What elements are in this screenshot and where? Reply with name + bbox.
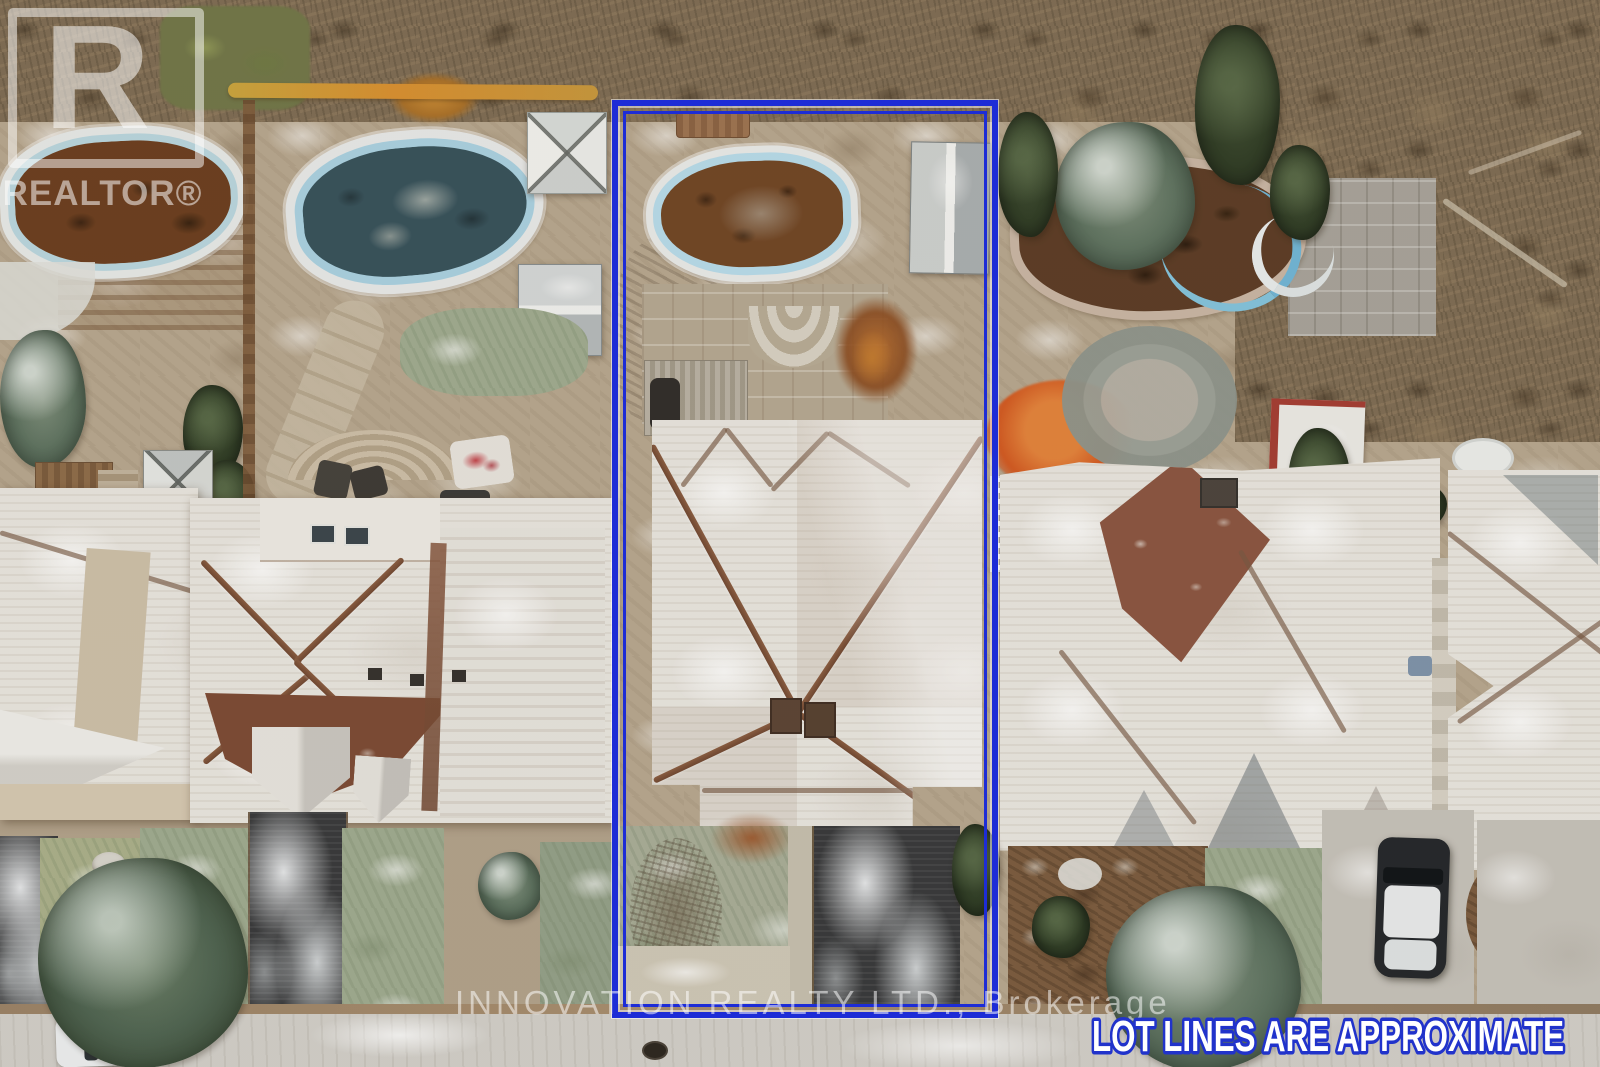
realtor-logo-label: REALTOR® [0, 174, 205, 214]
roof-facet-shadow [1503, 475, 1598, 565]
garden-shrub-1 [1032, 896, 1090, 958]
suv-windshield [1383, 867, 1444, 885]
disclaimer-text: LOT LINES ARE APPROXIMATE [1092, 1012, 1564, 1061]
wall-beige-bottom [0, 784, 198, 820]
roof-vent-2 [410, 674, 424, 686]
skylight-2 [344, 526, 370, 546]
front-bush-frost [478, 852, 542, 920]
conifer-lot-corner [998, 112, 1058, 237]
roof-fascia-beige [73, 548, 150, 744]
conifer-top-right-1 [1195, 25, 1280, 185]
lot-line-rectangle [612, 100, 998, 1018]
picnic-blanket [449, 434, 515, 490]
roof-section-redbrown [1085, 458, 1270, 673]
chimney-right-house [1200, 478, 1238, 508]
suv-roof-snow [1383, 885, 1441, 939]
left-main-house [190, 498, 615, 823]
brokerage-watermark: INNOVATION REALTY LTD., Brokerage [455, 984, 1171, 1022]
roof-vent-1 [368, 668, 382, 680]
conifer-far-left [0, 330, 86, 468]
orange-fence-line [228, 83, 598, 101]
left-front-lawn-2 [342, 828, 444, 1013]
pool-left [279, 119, 550, 303]
manhole-cover [642, 1041, 668, 1060]
conifer-top-right-2 [1270, 145, 1330, 240]
right-driveway-2 [1477, 820, 1600, 1012]
lot-line-inner [623, 111, 987, 1007]
suv-right-driveway [1374, 837, 1451, 979]
lawn-left-mid [400, 308, 588, 396]
skylight-1 [310, 524, 336, 544]
aerial-photo: R REALTOR® INNOVATION REALTY LTD., Broke… [0, 0, 1600, 1067]
garden-snow-patch [1058, 858, 1102, 890]
conifer-over-car [38, 858, 248, 1067]
neighbor-house-left [0, 488, 198, 820]
gable-wing-2 [351, 755, 411, 825]
roof-vent-3 [452, 670, 466, 682]
disclaimer-banner: LOT LINES ARE APPROXIMATE [1078, 1010, 1578, 1066]
realtor-logo-letter: R [8, 0, 186, 158]
conifer-over-right-pool [1055, 122, 1195, 270]
fence-far-left [243, 100, 255, 524]
roof-vent-blue [1408, 656, 1432, 676]
left-driveway [248, 812, 348, 1012]
realtor-watermark: R REALTOR® [6, 6, 216, 221]
gazebo-left [527, 112, 607, 194]
suv-trunk-snow [1384, 939, 1437, 971]
stone-circle-right [1062, 326, 1237, 474]
gable-wing-1 [252, 727, 350, 819]
